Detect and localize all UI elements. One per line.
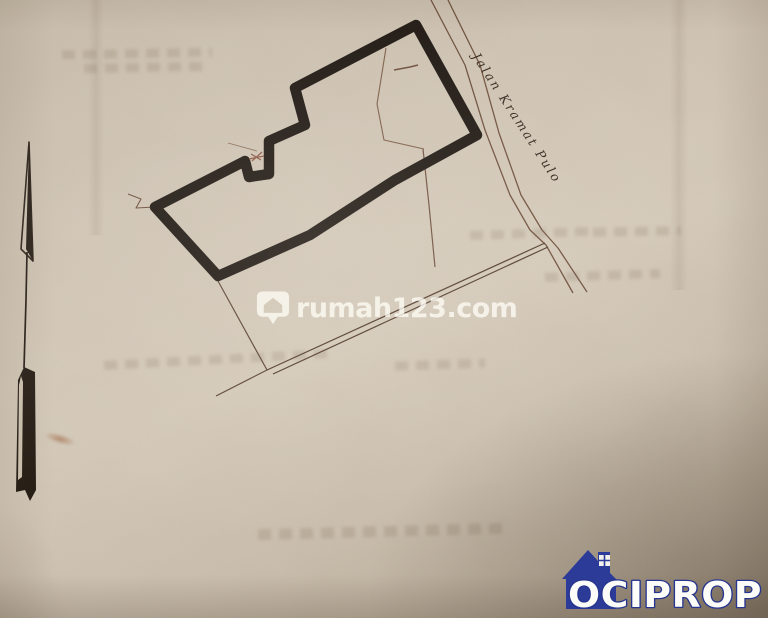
logo-text: OCIPROP [568,575,762,616]
watermark: rumah123.com [255,289,517,327]
watermark-text: rumah123.com [296,293,517,324]
north-arrow-icon [16,142,36,501]
survey-tick [394,65,418,70]
land-survey-photo: Jalan Kramat Pulo rumah123.com OCIPROP [0,0,768,618]
plot-boundary [155,25,477,276]
x-marker [249,152,264,161]
road-edge-east [448,0,587,292]
location-pin-house-icon [255,289,291,327]
brand-logo: OCIPROP [556,542,768,616]
parcel-line-inner [377,48,424,149]
pencil-line-notch [228,143,257,151]
north-arrow-shaft [24,252,27,368]
